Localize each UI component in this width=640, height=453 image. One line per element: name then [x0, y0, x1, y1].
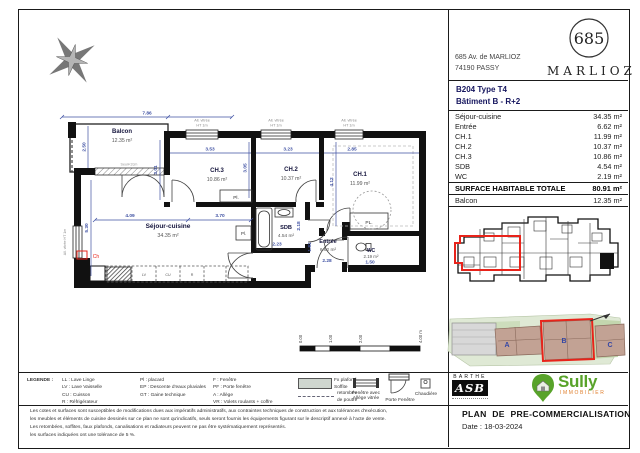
room-wc-area: 2.19 m² [364, 254, 379, 259]
disclaimer-line1: Les cotes et surfaces sont susceptibles … [30, 409, 387, 414]
marlioz-logo: 685 [560, 16, 620, 62]
logo-name: MARLIOZ [547, 64, 636, 78]
legend-french-door-icon [386, 373, 414, 395]
disclaimer-line4: les surfaces indiquées ont une tolérance… [30, 433, 136, 438]
plan-sheet: 7.86 2.50 3.53 3.01 3.23 3.05 2.85 4.12 … [0, 0, 640, 453]
placard-ch3-label: Pl. [233, 195, 239, 201]
table-balcony-row: Balcon12.35 m² [455, 196, 622, 206]
table-row: SDB4.54 m² [455, 162, 622, 172]
room-balcon-area: 12.35 m² [112, 138, 133, 144]
room-entree-name: Entrée [319, 239, 336, 245]
room-sejour-area: 34.35 m² [157, 233, 178, 239]
scale-1: 1.00 [328, 334, 333, 343]
north-compass-icon [35, 23, 110, 98]
legend-window-icon [353, 376, 379, 390]
legend-col3: F : Fenêtre PF : Porte fenêtre A : Allèg… [213, 377, 273, 407]
dim-sejour-w1: 4.09 [125, 213, 135, 219]
document-date: Date : 18-03-2024 [462, 422, 522, 431]
dim-entree-depth: 1.81 [307, 242, 313, 252]
disclaimer-line3: Les retombées, soffites, faux plafonds, … [30, 425, 286, 430]
placard-entree-label: PL. [365, 220, 372, 226]
scale-2: 2.00 [358, 334, 363, 343]
divider-header [449, 80, 628, 81]
table-row: CH.210.37 m² [455, 142, 622, 152]
window-note-ch3-1: All. vitrée [194, 119, 210, 123]
table-total-row: SURFACE HABITABLE TOTALE80.91 m² [455, 184, 622, 194]
kitchen-cu-label: CU [165, 273, 171, 277]
sully-pin-icon [530, 373, 556, 403]
placard-sejour-label: Pl. [241, 231, 246, 236]
legend-col1: LL : Lave Linge LV : Lave Vaisselle CU :… [62, 377, 102, 407]
window-note-ch3-2: HT 1m [196, 124, 207, 128]
room-ch1-name: CH.1 [353, 172, 367, 178]
unit-reference: B204 Type T4 [456, 85, 507, 94]
room-entree-area: 6.62 m² [320, 247, 337, 253]
legend-beam-dash [298, 396, 334, 397]
scale-3: 4.00 m [418, 330, 423, 343]
project-address-line1: 685 Av. de MARLIOZ [455, 53, 521, 63]
dim-sdb-depth: 2.18 [296, 221, 302, 231]
room-ch1-area: 11.99 m² [350, 181, 370, 187]
dim-ch2-depth: 3.05 [243, 163, 249, 173]
table-row: WC2.19 m² [455, 172, 622, 182]
floor-key-plan [450, 213, 628, 310]
room-ch2-area: 10.37 m² [281, 176, 302, 182]
scale-bar [300, 346, 420, 351]
document-title: PLAN DE PRE-COMMERCIALISATION [462, 409, 631, 419]
room-ch3-area: 10.86 m² [207, 177, 228, 183]
window-note-ch2-2: HT 1m [270, 124, 281, 128]
sully-logo: Sully IMMOBILIER [530, 373, 605, 403]
table-row: Séjour-cuisine34.35 m² [455, 112, 622, 122]
divider-unit-table [449, 110, 628, 111]
dim-wc-width: 1.50 [365, 260, 375, 266]
dim-ch3-depth: 3.01 [153, 165, 159, 175]
dim-sejour-depth: 5.30 [84, 223, 90, 233]
room-ch2-name: CH.2 [284, 167, 298, 173]
dim-ch2-width: 3.23 [283, 147, 293, 153]
site-building-c-label: C [607, 342, 612, 349]
site-building-b-label: B [561, 338, 566, 345]
dim-sdb-width: 2.23 [272, 242, 282, 248]
dim-balcon-depth: 2.50 [82, 142, 88, 152]
seuil-note: Seuil<2cm [121, 163, 138, 167]
divider-above-total [449, 182, 628, 183]
table-row: Entrée6.62 m² [455, 122, 622, 132]
dim-entree-width: 2.28 [322, 258, 332, 264]
kitchen-r-label: R [191, 273, 194, 277]
dim-top-width: 7.86 [142, 111, 152, 117]
room-sdb-name: SDB [280, 225, 292, 231]
project-address-line2: 74190 PASSY [455, 64, 499, 74]
dim-ch1-width: 2.85 [347, 147, 357, 153]
barthe-asb-logo: BARTHE ASB [452, 374, 488, 399]
divider-main-vertical [448, 9, 449, 447]
divider-below-balcony [449, 206, 628, 207]
room-balcon-name: Balcon [112, 129, 132, 135]
dim-ch3-width: 3.53 [205, 147, 215, 153]
kitchen-lv-label: LV [142, 273, 147, 277]
site-building-a-label: A [504, 342, 509, 349]
window-note-ch1-2: HT 1m [343, 124, 354, 128]
unit-building: Bâtiment B - R+2 [456, 97, 520, 106]
disclaimer-line2: les meubles et éléments de cuisine dessi… [30, 417, 386, 422]
legend-col2: Pl : placard EP : Descente d'eaux pluvia… [140, 377, 206, 399]
scale-0: 0.00 [298, 334, 303, 343]
room-sdb-area: 4.54 m² [278, 233, 295, 239]
legend-boiler-icon [420, 378, 431, 389]
dim-ch1-depth: 4.12 [329, 177, 335, 187]
table-row: CH.111.99 m² [455, 132, 622, 142]
legend-boiler-label: Chaudière [412, 391, 440, 398]
room-sejour-name: Séjour-cuisine [146, 223, 191, 230]
window-note-left-wall: All. vitrée HT 1m [63, 229, 67, 256]
site-plan: A B C [440, 311, 628, 372]
legend-title: LEGENDE : [27, 377, 53, 384]
logo-number: 685 [574, 29, 605, 48]
dim-sejour-w2: 3.70 [215, 213, 225, 219]
chaudiere-label: Ch [93, 254, 100, 260]
window-note-ch2-1: All. vitrée [268, 119, 284, 123]
room-ch3-name: CH.3 [210, 168, 224, 174]
legend-window-label: Fenêtre avec Allège vitrée [349, 391, 383, 402]
legend-soffit-swatch [298, 378, 332, 389]
table-row: CH.310.86 m² [455, 152, 622, 162]
window-note-ch1-1: All. vitrée [341, 119, 357, 123]
